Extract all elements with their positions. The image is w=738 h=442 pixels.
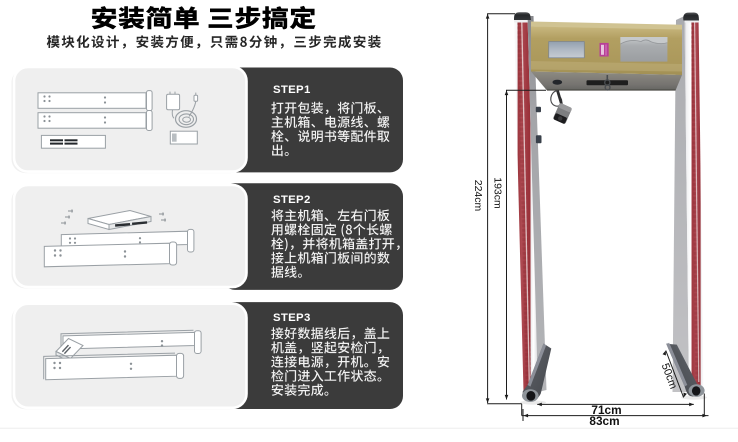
svg-text:83cm: 83cm: [589, 414, 619, 428]
svg-text:STEP3: STEP3: [273, 312, 311, 324]
svg-text:STEP2: STEP2: [273, 194, 311, 206]
svg-text:193cm: 193cm: [492, 177, 504, 209]
svg-text:224cm: 224cm: [472, 180, 484, 212]
svg-text:STEP1: STEP1: [273, 84, 311, 96]
